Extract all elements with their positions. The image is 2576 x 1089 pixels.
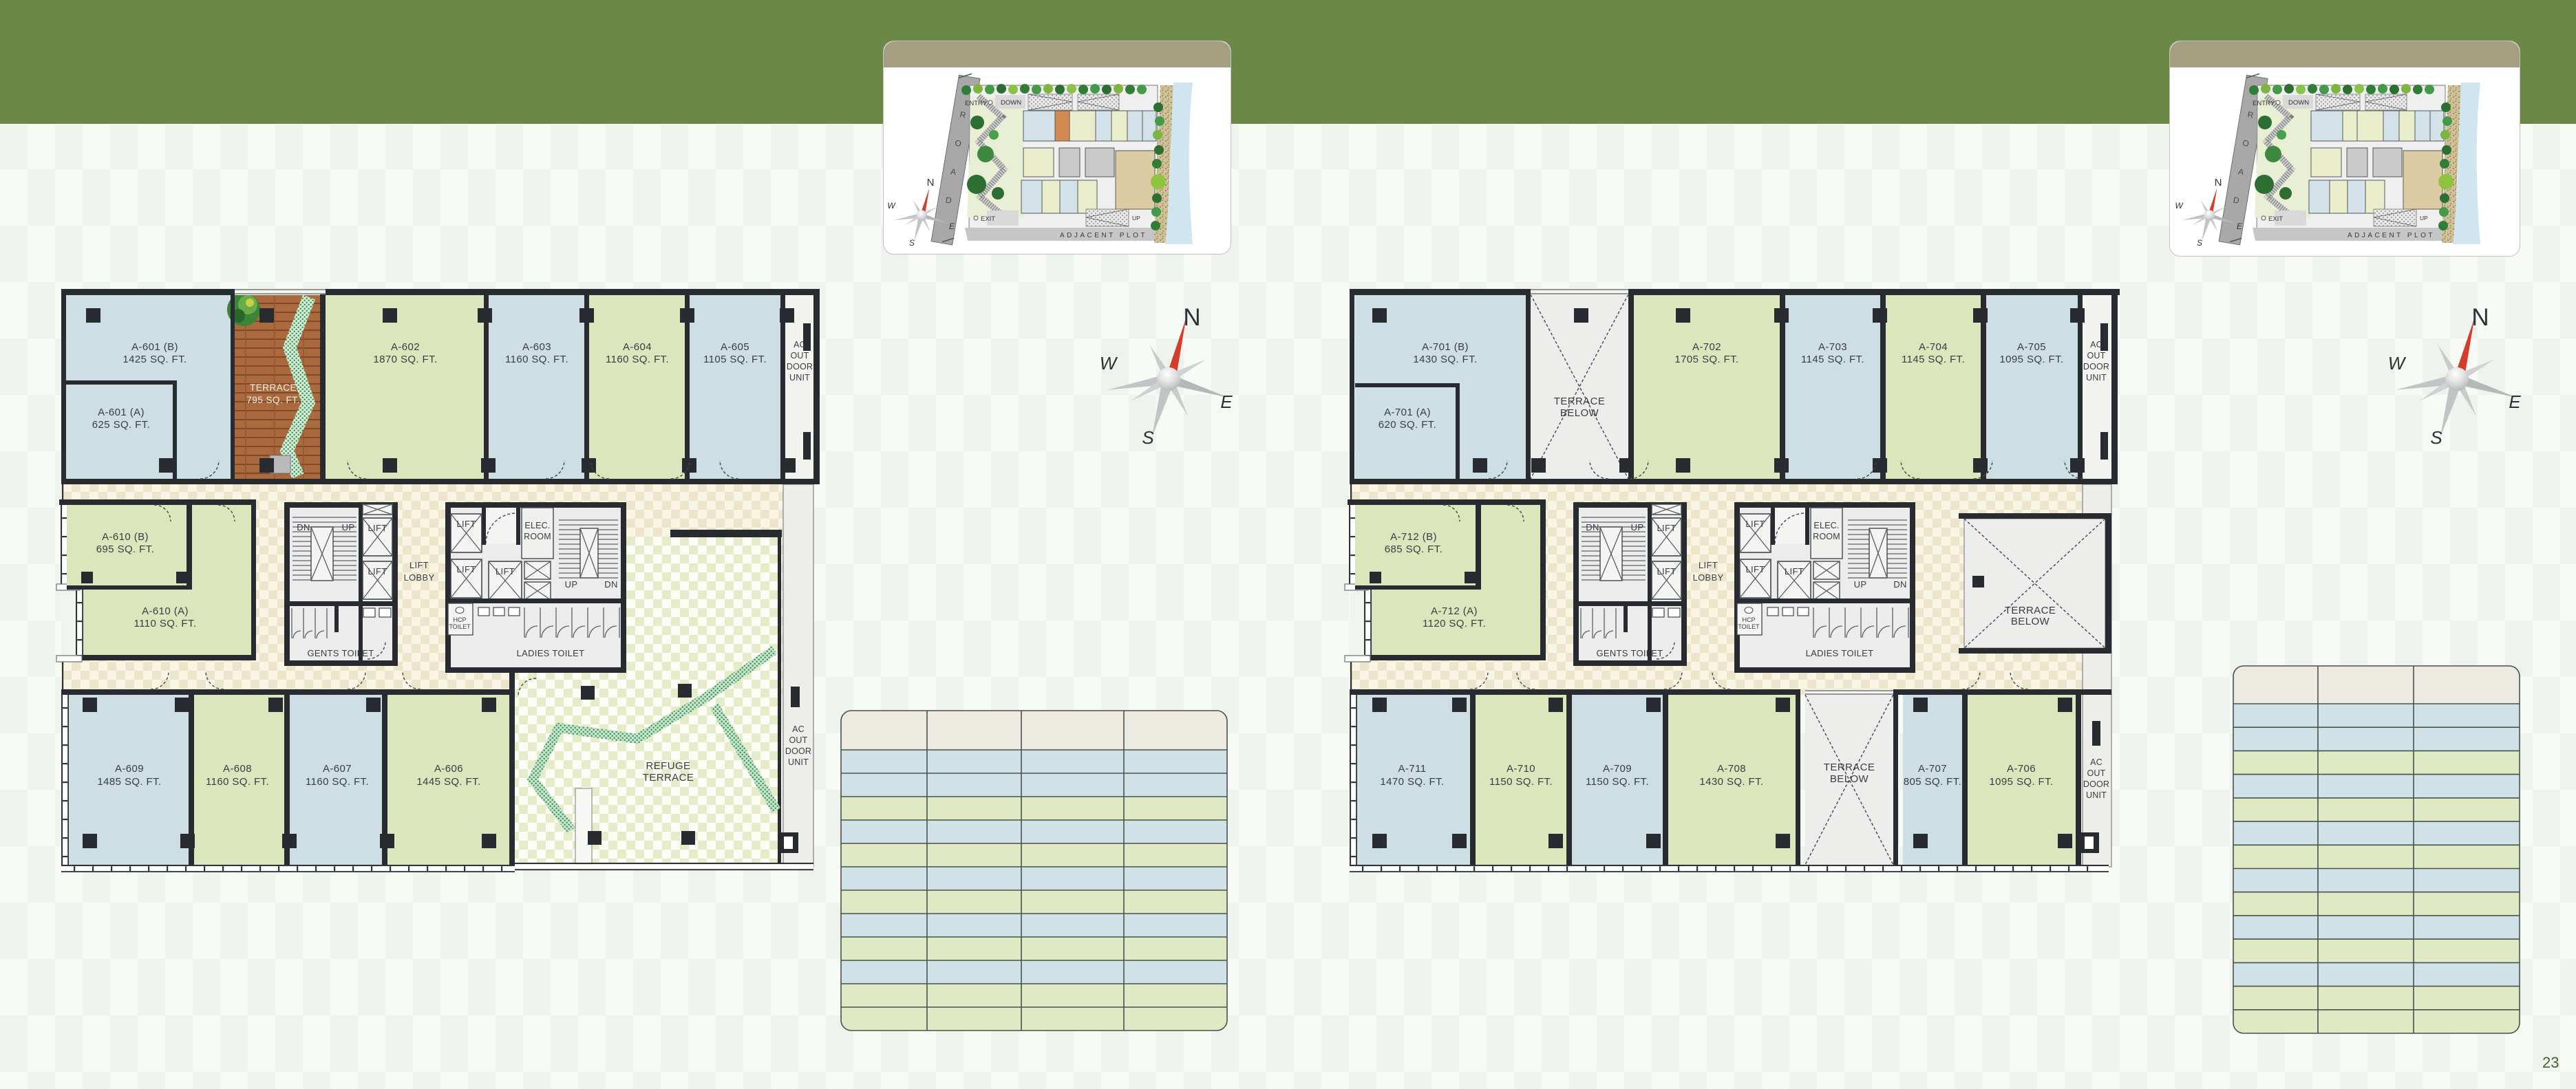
svg-text:A-701 (A): A-701 (A) — [1384, 407, 1431, 418]
svg-text:A-610 (B): A-610 (B) — [102, 531, 149, 543]
svg-text:BELOW: BELOW — [1560, 407, 1599, 419]
svg-text:LADIES TOILET: LADIES TOILET — [517, 648, 585, 658]
svg-text:LOBBY: LOBBY — [1693, 572, 1724, 583]
svg-text:REFUGE: REFUGE — [646, 760, 691, 772]
svg-text:LIFT: LIFT — [1746, 564, 1765, 574]
svg-text:1470 SQ. FT.: 1470 SQ. FT. — [1380, 776, 1444, 788]
svg-text:OUT: OUT — [2087, 768, 2106, 778]
svg-text:A-601 (B): A-601 (B) — [131, 341, 178, 353]
svg-text:LADIES TOILET: LADIES TOILET — [1806, 648, 1874, 658]
svg-text:795 SQ. FT.: 795 SQ. FT. — [246, 395, 300, 405]
svg-text:1870 SQ. FT.: 1870 SQ. FT. — [373, 354, 437, 365]
svg-text:1160 SQ. FT.: 1160 SQ. FT. — [606, 354, 669, 365]
svg-text:UNIT: UNIT — [789, 373, 810, 382]
svg-text:UP: UP — [1854, 579, 1867, 590]
svg-text:DOOR: DOOR — [785, 746, 811, 756]
svg-text:HCP: HCP — [1742, 616, 1755, 623]
svg-text:ELEC.: ELEC. — [524, 521, 550, 530]
svg-text:AC: AC — [792, 724, 805, 734]
svg-text:1425 SQ. FT.: 1425 SQ. FT. — [123, 354, 187, 365]
svg-text:ROOM: ROOM — [1813, 532, 1840, 541]
svg-text:A-603: A-603 — [522, 341, 551, 353]
svg-text:LIFT: LIFT — [1657, 523, 1676, 533]
svg-text:1160 SQ. FT.: 1160 SQ. FT. — [206, 776, 269, 788]
svg-text:GENTS TOILET: GENTS TOILET — [1596, 648, 1663, 658]
svg-text:GENTS TOILET: GENTS TOILET — [307, 648, 374, 658]
svg-text:LIFT: LIFT — [368, 566, 387, 576]
svg-text:TOILET: TOILET — [1738, 623, 1760, 630]
svg-text:1430 SQ. FT.: 1430 SQ. FT. — [1699, 776, 1763, 788]
svg-text:OUT: OUT — [789, 735, 808, 745]
svg-text:LOBBY: LOBBY — [404, 572, 435, 583]
svg-text:N: N — [2471, 304, 2489, 331]
svg-text:LIFT: LIFT — [1699, 560, 1718, 570]
svg-text:1095 SQ. FT.: 1095 SQ. FT. — [1989, 776, 2053, 788]
svg-text:A-702: A-702 — [1692, 341, 1721, 353]
svg-text:E: E — [2509, 391, 2521, 412]
svg-text:1095 SQ. FT.: 1095 SQ. FT. — [1999, 354, 2063, 365]
svg-text:LIFT: LIFT — [368, 523, 387, 533]
svg-text:DN: DN — [1893, 579, 1906, 590]
svg-text:A-712 (A): A-712 (A) — [1431, 605, 1478, 617]
svg-text:23: 23 — [2542, 1054, 2559, 1071]
svg-text:1160 SQ. FT.: 1160 SQ. FT. — [505, 354, 568, 365]
svg-text:TERRACE: TERRACE — [643, 772, 694, 784]
svg-text:A-711: A-711 — [1398, 763, 1427, 775]
svg-text:E: E — [1220, 391, 1233, 412]
svg-text:UNIT: UNIT — [788, 757, 809, 767]
svg-text:A-601 (A): A-601 (A) — [98, 407, 145, 418]
svg-text:LIFT: LIFT — [457, 519, 476, 529]
svg-text:A-709: A-709 — [1603, 763, 1632, 775]
svg-text:DN: DN — [297, 522, 310, 532]
svg-text:1485 SQ. FT.: 1485 SQ. FT. — [97, 776, 161, 788]
svg-text:A-602: A-602 — [391, 341, 420, 353]
svg-text:620 SQ. FT.: 620 SQ. FT. — [1379, 419, 1436, 431]
svg-text:A-707: A-707 — [1918, 763, 1947, 775]
svg-text:1145 SQ. FT.: 1145 SQ. FT. — [1801, 354, 1864, 365]
svg-text:A-605: A-605 — [721, 341, 749, 353]
svg-text:UNIT: UNIT — [2086, 790, 2107, 800]
svg-text:TERRACE: TERRACE — [1554, 396, 1605, 407]
svg-text:A-705: A-705 — [2017, 341, 2046, 353]
svg-text:A-610 (A): A-610 (A) — [142, 605, 189, 617]
svg-text:1110 SQ. FT.: 1110 SQ. FT. — [134, 618, 197, 629]
svg-text:625 SQ. FT.: 625 SQ. FT. — [92, 419, 150, 431]
svg-text:1150 SQ. FT.: 1150 SQ. FT. — [1586, 776, 1649, 788]
svg-text:805 SQ. FT.: 805 SQ. FT. — [1904, 776, 1961, 788]
svg-text:N: N — [1183, 304, 1200, 331]
svg-text:A-701 (B): A-701 (B) — [1422, 341, 1469, 353]
svg-text:1160 SQ. FT.: 1160 SQ. FT. — [306, 776, 369, 788]
svg-text:A-607: A-607 — [323, 763, 352, 775]
svg-text:DN: DN — [604, 579, 617, 590]
svg-text:W: W — [1100, 353, 1118, 374]
svg-text:A-606: A-606 — [434, 763, 463, 775]
svg-text:S: S — [2430, 427, 2442, 448]
svg-text:1705 SQ. FT.: 1705 SQ. FT. — [1674, 354, 1738, 365]
svg-text:ELEC.: ELEC. — [1813, 521, 1839, 530]
svg-text:ROOM: ROOM — [524, 532, 551, 541]
svg-text:UP: UP — [1631, 522, 1644, 532]
svg-text:1430 SQ. FT.: 1430 SQ. FT. — [1413, 354, 1477, 365]
svg-text:DN: DN — [1586, 522, 1599, 532]
svg-text:AC: AC — [2090, 757, 2103, 767]
svg-text:LIFT: LIFT — [1657, 566, 1676, 576]
svg-text:1150 SQ. FT.: 1150 SQ. FT. — [1489, 776, 1553, 788]
svg-text:HCP: HCP — [453, 616, 466, 623]
svg-text:DOOR: DOOR — [787, 362, 813, 371]
svg-text:UP: UP — [565, 579, 578, 590]
svg-text:LIFT: LIFT — [496, 566, 515, 576]
svg-text:UNIT: UNIT — [2086, 373, 2107, 382]
svg-text:1120 SQ. FT.: 1120 SQ. FT. — [1423, 618, 1486, 629]
svg-text:1105 SQ. FT.: 1105 SQ. FT. — [703, 354, 767, 365]
svg-text:BELOW: BELOW — [1830, 773, 1869, 785]
svg-text:TERRACE: TERRACE — [1824, 762, 1875, 773]
svg-text:A-708: A-708 — [1717, 763, 1746, 775]
svg-text:A-608: A-608 — [223, 763, 252, 775]
svg-text:A-706: A-706 — [2007, 763, 2036, 775]
svg-text:1445 SQ. FT.: 1445 SQ. FT. — [416, 776, 480, 788]
svg-text:LIFT: LIFT — [457, 564, 476, 574]
svg-text:DOOR: DOOR — [2083, 362, 2109, 371]
svg-text:1145 SQ. FT.: 1145 SQ. FT. — [1902, 354, 1965, 365]
svg-text:TOILET: TOILET — [449, 623, 471, 630]
svg-text:685 SQ. FT.: 685 SQ. FT. — [1385, 543, 1443, 555]
svg-text:A-703: A-703 — [1818, 341, 1847, 353]
svg-text:TERRACE: TERRACE — [2005, 605, 2056, 616]
svg-text:A-609: A-609 — [115, 763, 144, 775]
svg-text:BELOW: BELOW — [2011, 616, 2050, 627]
svg-text:DOOR: DOOR — [2083, 779, 2109, 789]
svg-text:LIFT: LIFT — [1746, 519, 1765, 529]
svg-text:OUT: OUT — [791, 351, 809, 360]
svg-text:695 SQ. FT.: 695 SQ. FT. — [96, 543, 154, 555]
svg-text:A-712 (B): A-712 (B) — [1390, 531, 1437, 543]
svg-text:S: S — [1142, 427, 1154, 448]
svg-text:UP: UP — [342, 522, 355, 532]
svg-text:OUT: OUT — [2087, 351, 2106, 360]
svg-text:LIFT: LIFT — [1785, 566, 1804, 576]
svg-text:TERRACE: TERRACE — [250, 382, 297, 393]
svg-text:W: W — [2388, 353, 2407, 374]
svg-text:LIFT: LIFT — [409, 560, 429, 570]
svg-text:A-710: A-710 — [1507, 763, 1535, 775]
svg-text:A-604: A-604 — [623, 341, 652, 353]
svg-text:A-704: A-704 — [1919, 341, 1948, 353]
